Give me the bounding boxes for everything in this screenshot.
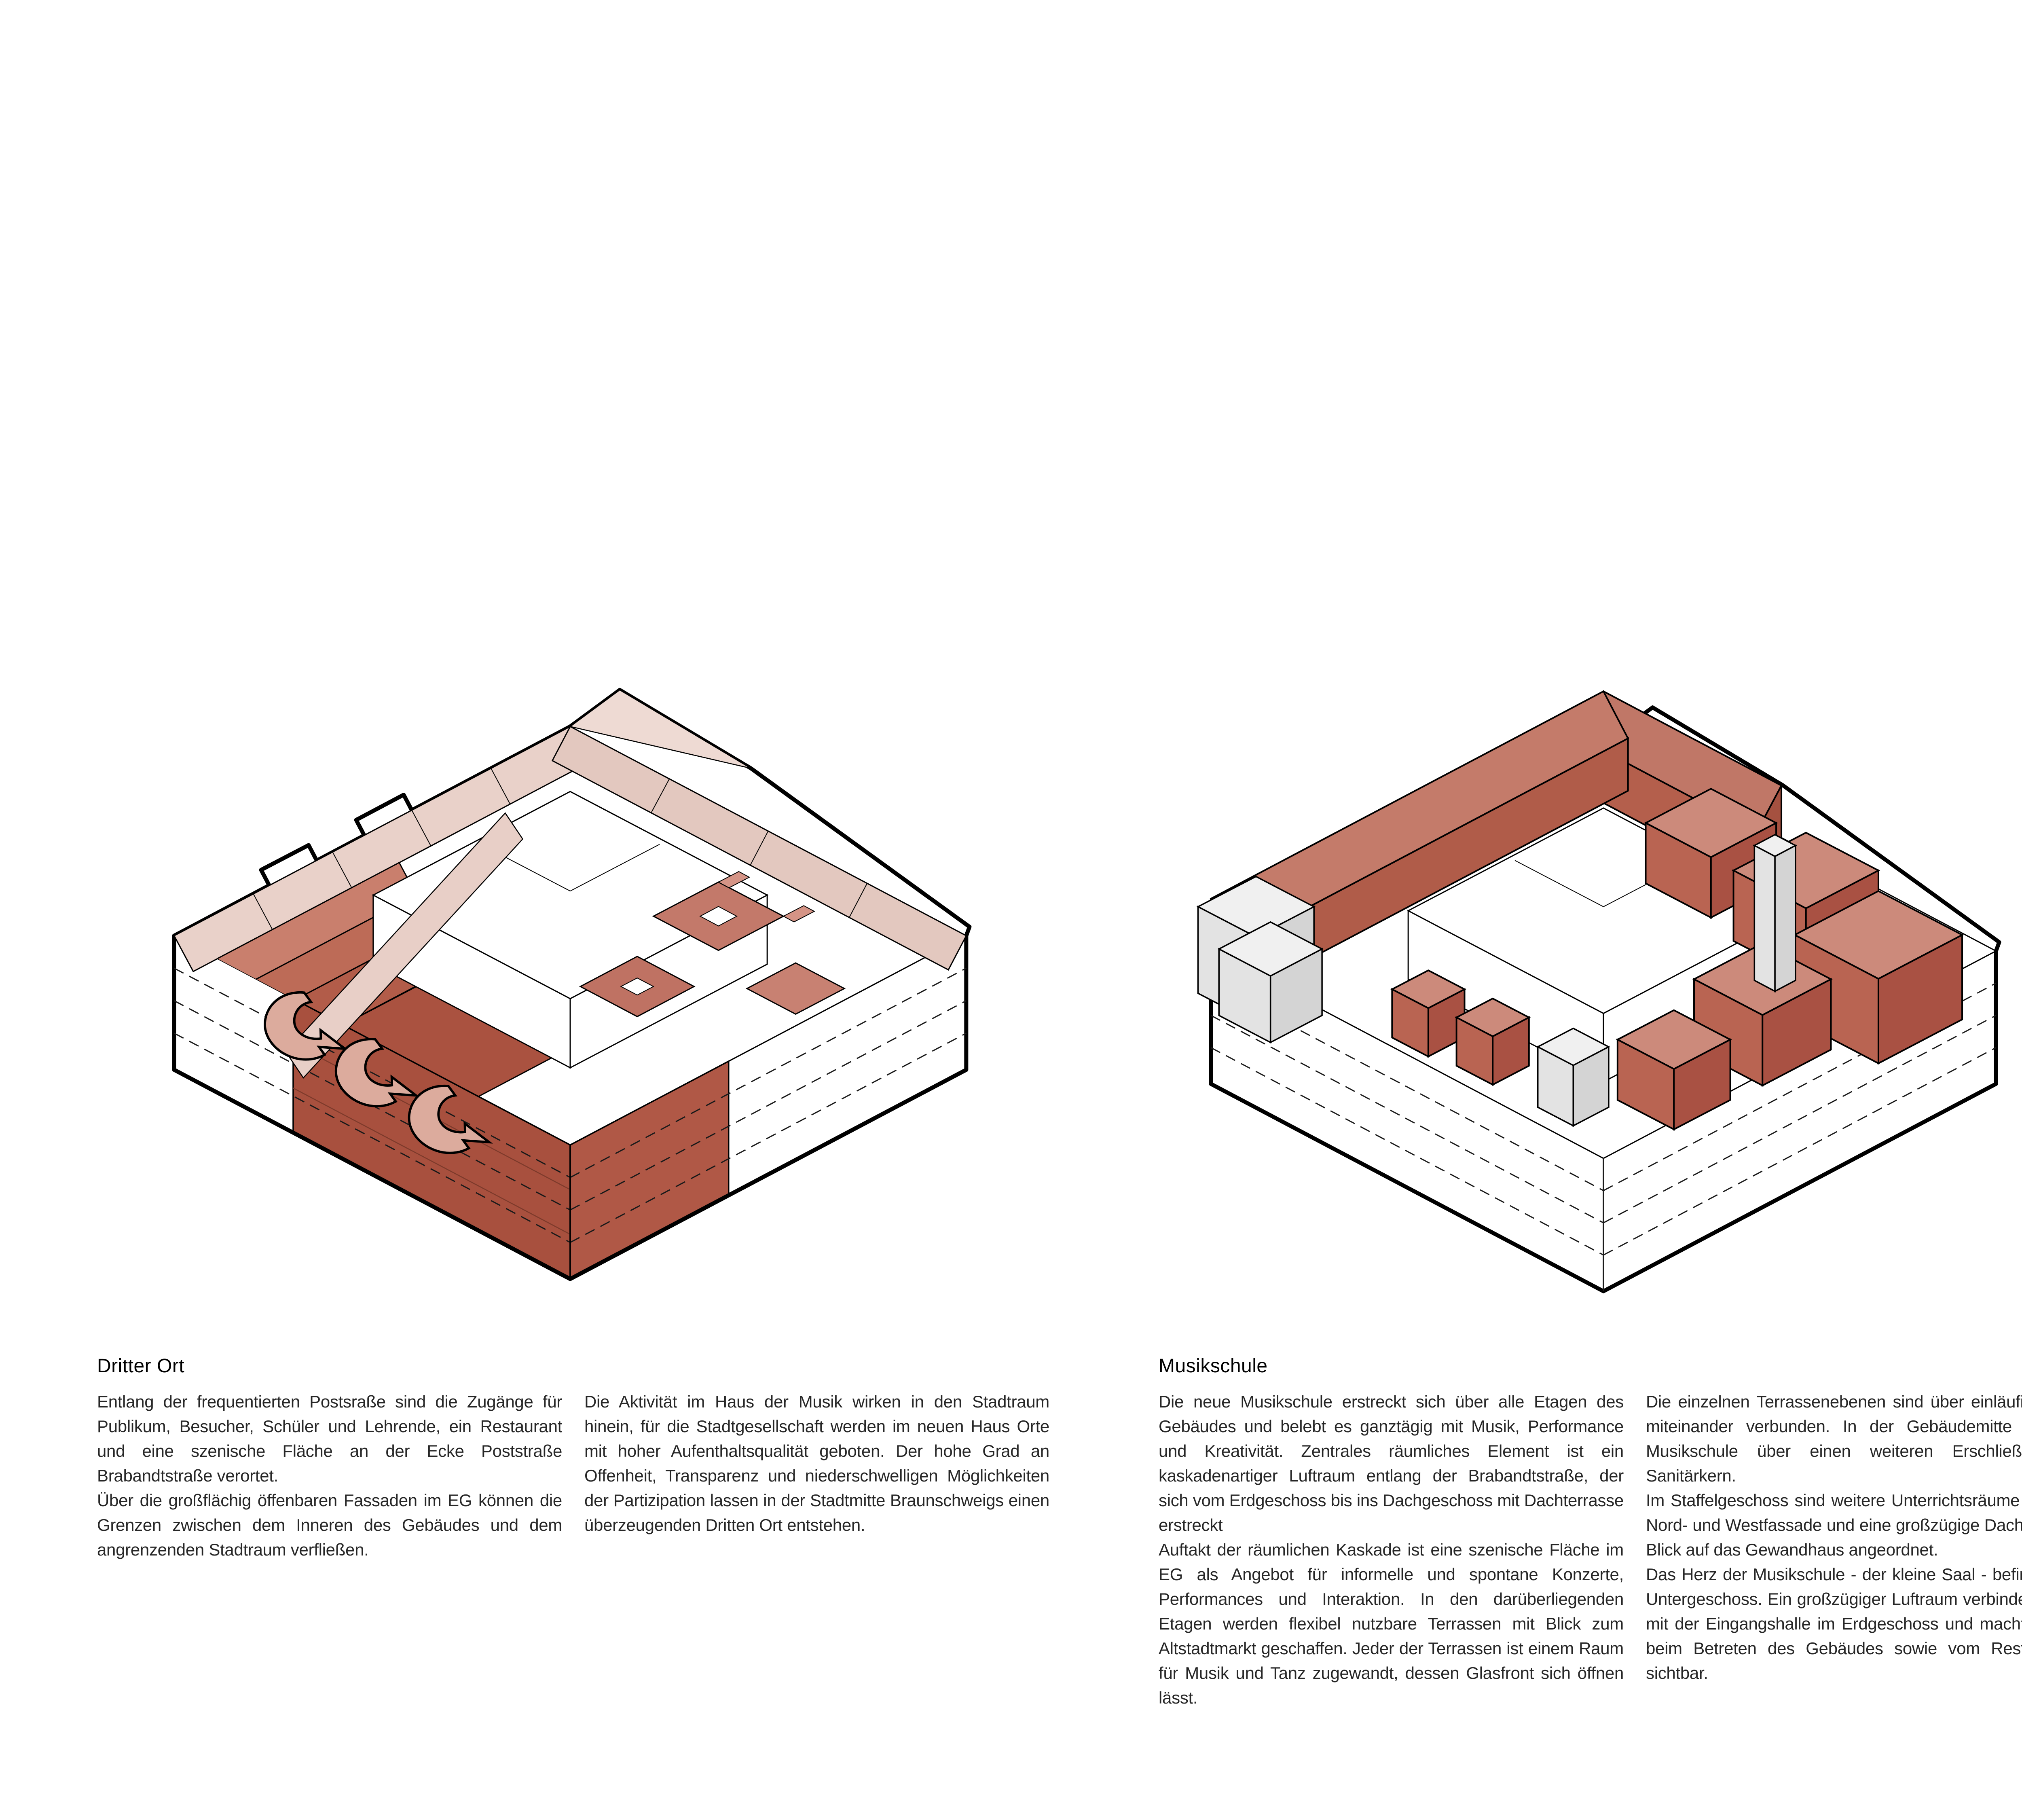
paragraph: Auftakt der räumlichen Kaskade ist eine … (1159, 1537, 1624, 1710)
paragraph: Entlang der frequentierten Postsraße sin… (97, 1389, 562, 1488)
paragraph: Die einzelnen Terrassenebenen sind über … (1646, 1389, 2022, 1488)
musikschule-column-2: Die einzelnen Terrassenebenen sind über … (1646, 1389, 2022, 1685)
section-title-musikschule: Musikschule (1159, 1355, 1268, 1377)
paragraph: Die neue Musikschule erstreckt sich über… (1159, 1389, 1624, 1537)
musikschule-column-1: Die neue Musikschule erstreckt sich über… (1159, 1389, 1624, 1710)
axonometric-diagram-dritter-ort (113, 607, 1027, 1338)
dritter-ort-column-1: Entlang der frequentierten Postsraße sin… (97, 1389, 562, 1562)
section-title-dritter-ort: Dritter Ort (97, 1355, 184, 1377)
dritter-ort-column-2: Die Aktivität im Haus der Musik wirken i… (584, 1389, 1049, 1537)
paragraph: Die Aktivität im Haus der Musik wirken i… (584, 1389, 1049, 1537)
paragraph: Das Herz der Musikschule - der kleine Sa… (1646, 1562, 2022, 1685)
paragraph: Im Staffelgeschoss sind weitere Unterric… (1646, 1488, 2022, 1562)
axonometric-diagram-musikschule (1151, 625, 2022, 1350)
presentation-board: { "page": { "background": "#ffffff", "te… (0, 0, 2022, 1820)
paragraph: Über die großflächig öffenbaren Fassaden… (97, 1488, 562, 1562)
